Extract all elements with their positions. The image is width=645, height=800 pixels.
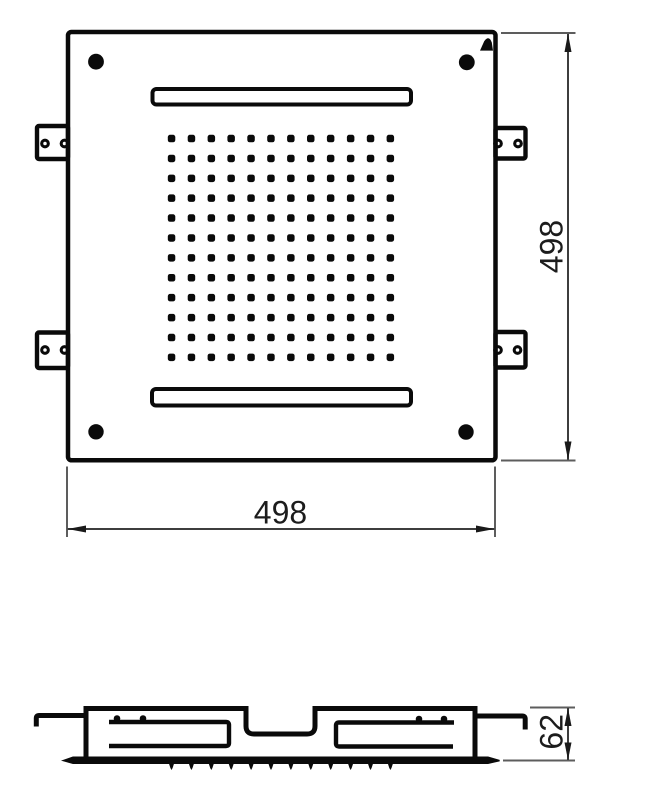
svg-text:498: 498 — [254, 495, 307, 531]
svg-text:62: 62 — [534, 714, 570, 750]
svg-text:498: 498 — [534, 220, 570, 273]
